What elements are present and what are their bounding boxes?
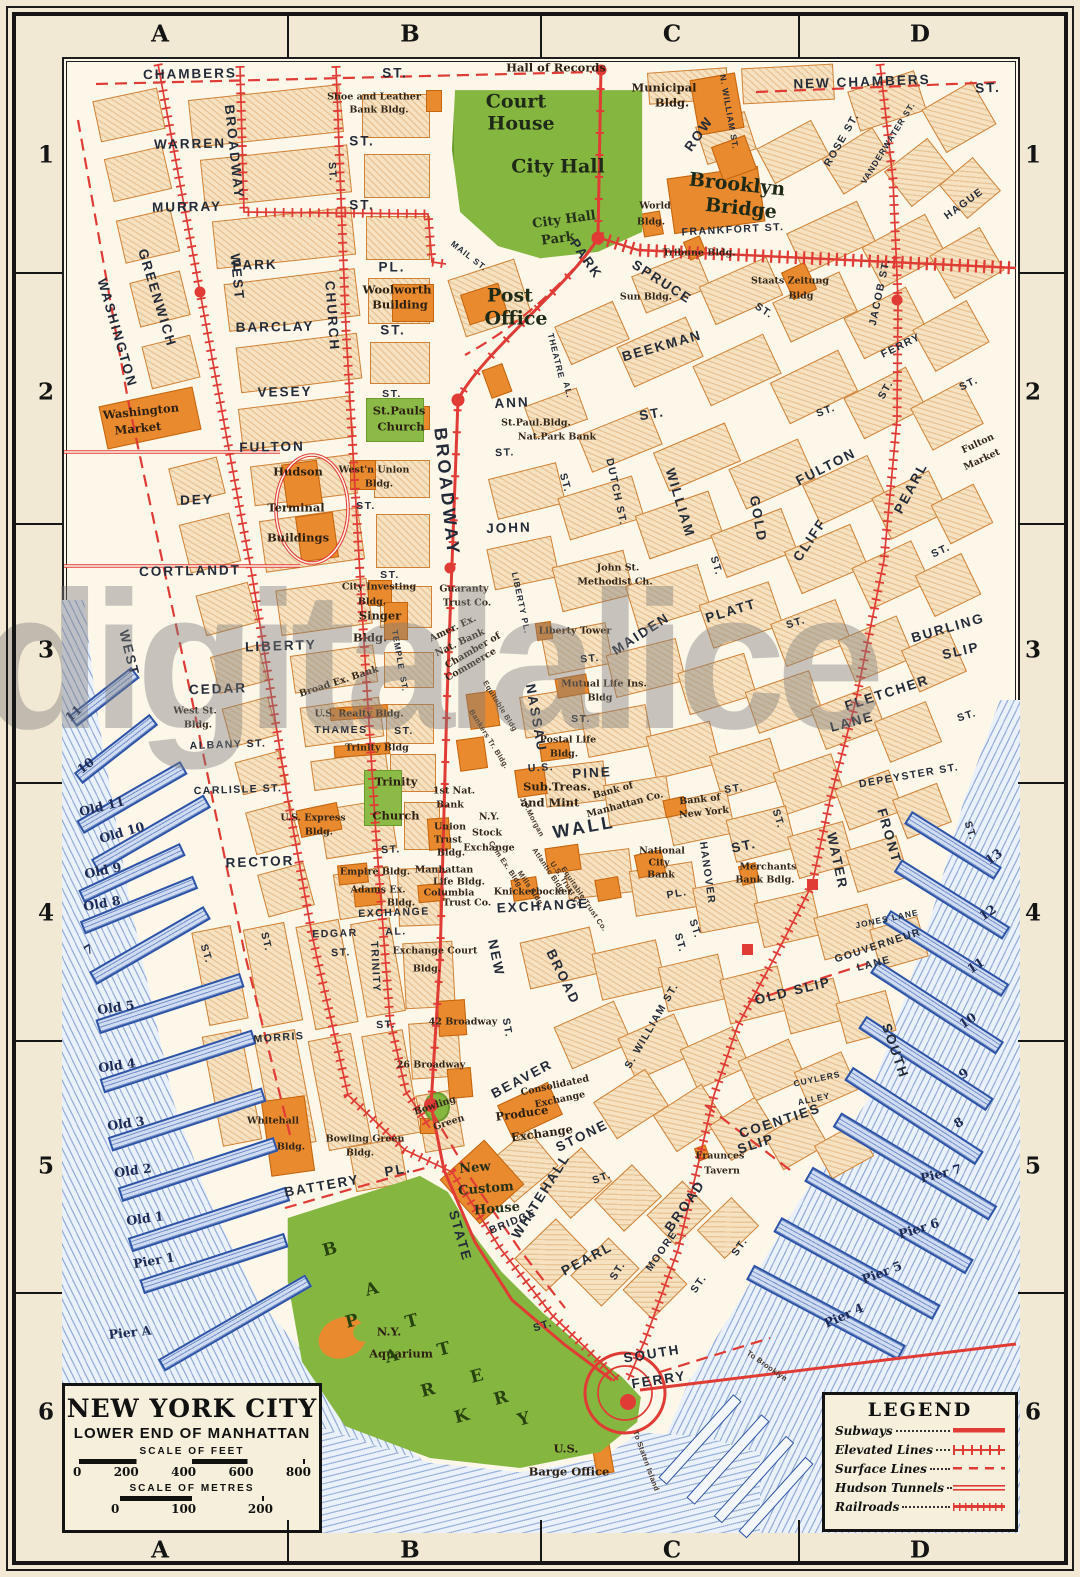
- grid-letter: D: [910, 1539, 930, 1562]
- grid-tick: [287, 1520, 289, 1561]
- legend-item-label: Subways: [835, 1424, 893, 1438]
- grid-tick: [1018, 1292, 1064, 1294]
- map-label: BARCLAY: [236, 320, 315, 335]
- map-label: ST.: [356, 501, 376, 512]
- map-label: RECTOR: [225, 854, 294, 870]
- grid-letter: B: [400, 1539, 419, 1562]
- map-label: U.S.: [554, 1443, 579, 1455]
- map-label: West St.: [173, 706, 217, 716]
- map-label: ST.: [380, 323, 406, 337]
- map-label: World: [639, 201, 671, 211]
- map-label: Columbia: [424, 888, 475, 898]
- map-label: CORTLANDT: [139, 563, 241, 578]
- grid-letter: B: [400, 23, 419, 46]
- grid-tick: [798, 1520, 800, 1561]
- scale-metres-label: SCALE OF METRES: [65, 1483, 319, 1494]
- legend-line-sample-elevated: [953, 1444, 1005, 1455]
- map-label: ST.: [580, 653, 601, 665]
- map-label: St.Pauls: [373, 405, 426, 417]
- map-label: Nat.Park Bank: [518, 432, 596, 442]
- map-label: THAMES: [314, 725, 367, 736]
- legend-leader: [947, 1486, 950, 1489]
- map-label: Exchange Court: [393, 946, 478, 956]
- map-label: Manhattan: [415, 865, 473, 875]
- grid-tick: [287, 16, 289, 57]
- map-title: NEW YORK CITY: [65, 1394, 319, 1423]
- map-label: City: [648, 858, 669, 868]
- legend-line-sample-subway: [953, 1425, 1005, 1436]
- legend-rows: SubwaysElevated LinesSurface LinesHudson…: [835, 1421, 1005, 1516]
- legend-item: Surface Lines: [835, 1459, 1005, 1478]
- map-label: Methodist Ch.: [577, 577, 652, 587]
- map-label: Empire Bldg.: [340, 867, 410, 877]
- map-label: Woolworth: [363, 284, 432, 296]
- grid-tick: [1018, 523, 1064, 525]
- grid-tick: [1018, 782, 1064, 784]
- grid-tick: [540, 1520, 542, 1561]
- map-label: Bldg: [789, 291, 814, 301]
- grid-tick: [16, 782, 62, 784]
- map-label: Adams Ex.: [350, 885, 405, 895]
- map-label: Bldg.: [353, 632, 387, 644]
- grid-number: 1: [38, 144, 54, 167]
- title-box: NEW YORK CITY LOWER END OF MANHATTAN SCA…: [62, 1383, 322, 1533]
- building-block: [594, 876, 621, 902]
- map-label: Bldg.: [637, 217, 665, 227]
- map-label: City Investing: [342, 582, 416, 592]
- map-label: TRINITY: [368, 941, 381, 993]
- grid-tick: [16, 1292, 62, 1294]
- map-page: digitalalice NEW YORK CITY LOWER END OF …: [0, 0, 1080, 1577]
- map-subtitle: LOWER END OF MANHATTAN: [65, 1425, 319, 1442]
- map-label: Bowling Green: [326, 1134, 405, 1144]
- map-label: Bank Bdlg.: [735, 875, 794, 885]
- map-label: Trust: [434, 835, 462, 845]
- grid-number: 4: [1025, 902, 1041, 925]
- map-label: Court: [486, 93, 546, 112]
- map-label: ST.: [331, 947, 351, 958]
- map-label: Bldg.: [184, 720, 212, 730]
- legend-leader: [936, 1448, 950, 1451]
- city-block: [364, 154, 430, 198]
- map-label: Barge Office: [529, 1466, 610, 1478]
- grid-tick: [798, 16, 800, 57]
- map-label: N.Y.: [377, 1326, 402, 1338]
- map-label: Post: [487, 287, 533, 306]
- map-label: WARREN: [154, 137, 226, 152]
- legend-line-sample-railroad: [953, 1501, 1005, 1512]
- legend-item-label: Elevated Lines: [835, 1443, 933, 1457]
- map-label: LIBERTY: [245, 638, 317, 654]
- map-label: U.S.: [528, 762, 555, 774]
- map-label: VESEY: [257, 385, 312, 399]
- legend-item: Elevated Lines: [835, 1440, 1005, 1459]
- legend-leader: [896, 1429, 950, 1432]
- legend-leader: [930, 1467, 950, 1470]
- legend-item: Railroads: [835, 1497, 1005, 1516]
- grid-number: 4: [38, 902, 54, 925]
- legend-item-label: Surface Lines: [835, 1462, 927, 1476]
- scale-metres-ticks: 0100200: [65, 1501, 319, 1516]
- map-label: Bldg.: [655, 97, 689, 109]
- grid-number: 6: [1025, 1401, 1041, 1424]
- map-label: 1st Nat.: [433, 786, 475, 796]
- map-label: Bank Bldg.: [349, 105, 408, 115]
- map-label: U.S. Express: [280, 813, 345, 823]
- map-label: Building: [372, 299, 428, 311]
- map-label: St.Paul.Bldg.: [501, 418, 571, 428]
- map-label: ST.: [398, 676, 409, 693]
- map-label: ST.: [349, 134, 375, 148]
- map-label: Bldg.: [346, 1148, 374, 1158]
- map-label: 42 Broadway: [429, 1017, 498, 1027]
- map-label: PL.: [378, 260, 405, 274]
- map-label: Merchants: [739, 862, 796, 872]
- city-block: [376, 514, 430, 568]
- map-label: ST.: [394, 726, 414, 737]
- map-label: Whitehall: [247, 1116, 299, 1126]
- map-label: Office: [484, 310, 547, 329]
- grid-tick: [540, 16, 542, 57]
- map-label: 26 Broadway: [397, 1060, 466, 1070]
- grid-number: 2: [1025, 381, 1041, 404]
- legend-item: Subways: [835, 1421, 1005, 1440]
- map-label: Union: [434, 822, 466, 832]
- city-block: [366, 216, 430, 260]
- map-label: Bldg.: [277, 1142, 305, 1152]
- map-label: New: [459, 1160, 491, 1176]
- map-label: West'n Union: [339, 465, 410, 475]
- map-label: ALBANY ST.: [190, 738, 267, 751]
- building-block: [456, 736, 488, 772]
- map-label: Fraunces: [696, 1151, 745, 1161]
- grid-number: 6: [38, 1401, 54, 1424]
- map-label: National: [639, 846, 685, 856]
- map-label: Bank: [436, 800, 464, 810]
- grid-number: 5: [1025, 1155, 1041, 1178]
- legend-item-label: Railroads: [835, 1500, 899, 1514]
- map-label: Terminal: [267, 502, 324, 514]
- map-label: ST.: [571, 714, 591, 725]
- grid-tick: [1018, 1040, 1064, 1042]
- map-label: ANN: [494, 395, 530, 410]
- map-label: Sun Bldg.: [620, 292, 672, 302]
- map-label: Hall of Records: [506, 62, 606, 74]
- grid-letter: A: [151, 23, 169, 46]
- map-label: and Mint: [521, 797, 580, 809]
- legend-heading: LEGEND: [835, 1399, 1005, 1421]
- map-label: Knickerbocker: [494, 887, 573, 897]
- legend-item: Hudson Tunnels: [835, 1478, 1005, 1497]
- map-label: Staats Zeitung: [751, 276, 829, 286]
- map-label: N.Y.: [479, 812, 499, 822]
- grid-number: 2: [38, 381, 54, 404]
- grid-number: 5: [38, 1155, 54, 1178]
- map-label: ST.: [380, 570, 400, 581]
- map-label: Municipal: [631, 82, 696, 94]
- map-label: Trust Co.: [443, 898, 491, 908]
- map-label: ST.: [382, 66, 408, 80]
- map-label: MURRAY: [152, 200, 222, 215]
- legend-item-label: Hudson Tunnels: [835, 1481, 944, 1495]
- map-label: U.S. Realty Bldg.: [314, 709, 403, 719]
- map-label: ST.: [376, 1019, 396, 1031]
- map-label: ST.: [500, 1017, 514, 1038]
- map-label: Trinity Bldg: [345, 743, 409, 753]
- map-label: ST.: [382, 389, 402, 400]
- map-label: Tavern: [704, 1166, 740, 1176]
- city-block: [370, 342, 430, 384]
- map-label: CHAMBERS: [143, 66, 237, 81]
- grid-letter: C: [663, 23, 681, 46]
- grid-number: 3: [1025, 639, 1041, 662]
- map-label: Bldg.: [365, 479, 393, 489]
- map-label: JOHN: [486, 520, 532, 535]
- map-label: Shoe and Leather: [327, 92, 421, 102]
- map-label: ST.: [495, 447, 515, 458]
- map-label: Postal Life: [540, 735, 596, 745]
- map-label: John St.: [597, 563, 640, 573]
- map-label: Singer: [359, 610, 401, 622]
- map-label: EDGAR: [312, 928, 358, 940]
- legend-box: LEGEND SubwaysElevated LinesSurface Line…: [822, 1392, 1018, 1532]
- map-label: Sub.Treas.: [523, 781, 591, 793]
- legend-line-sample-surface: [953, 1463, 1005, 1474]
- map-label: Bank: [647, 870, 675, 880]
- grid-tick: [16, 1040, 62, 1042]
- map-label: ST.: [326, 162, 338, 182]
- map-label: Aquarium: [369, 1348, 433, 1360]
- grid-number: 3: [38, 639, 54, 662]
- map-label: ST.: [724, 782, 745, 795]
- building-block: [426, 90, 442, 112]
- scale-feet-label: SCALE OF FEET: [65, 1446, 319, 1457]
- legend-leader: [902, 1505, 950, 1508]
- grid-letter: D: [910, 23, 930, 46]
- grid-letter: A: [151, 1539, 169, 1562]
- scale-feet-ticks: 0200400600800: [65, 1464, 319, 1479]
- grid-tick: [16, 523, 62, 525]
- map-label: Bldg.: [305, 827, 333, 837]
- map-label: Life Bldg.: [433, 877, 485, 887]
- map-label: Mutual Life Ins.: [561, 679, 647, 689]
- map-label: Liberty Tower: [539, 626, 612, 636]
- map-label: Bldg.: [413, 964, 441, 974]
- map-label: ST.: [381, 844, 401, 855]
- map-label: Bldg: [588, 693, 613, 703]
- map-label: Church: [377, 421, 424, 433]
- map-label: AL.: [385, 926, 407, 937]
- map-label: ST.: [975, 81, 1001, 95]
- map-label: Bldg.: [550, 749, 578, 759]
- grid-letter: C: [663, 1539, 681, 1562]
- grid-tick: [16, 272, 62, 274]
- map-label: House: [487, 115, 554, 134]
- map-label: Church: [372, 810, 419, 822]
- map-label: Tribune Bldg.: [662, 248, 735, 258]
- map-label: City Hall: [511, 158, 604, 177]
- map-label: Trust Co.: [443, 598, 491, 608]
- map-label: CEDAR: [189, 681, 247, 697]
- map-label: FULTON: [239, 440, 305, 455]
- map-label: Hudson: [273, 466, 323, 478]
- map-label: EXCHANGE: [358, 907, 430, 920]
- grid-number: 1: [1025, 144, 1041, 167]
- map-label: Stock: [472, 828, 502, 838]
- map-label: Bldg.: [358, 597, 386, 607]
- legend-line-sample-tunnels: [953, 1485, 1005, 1491]
- map-label: Trinity: [375, 776, 418, 788]
- map-label: Buildings: [267, 532, 329, 544]
- map-label: DEY: [180, 493, 214, 508]
- map-label: Guaranty: [439, 584, 488, 594]
- map-label: ST.: [349, 198, 375, 212]
- map-label: Bldg.: [437, 848, 465, 858]
- grid-tick: [1018, 272, 1064, 274]
